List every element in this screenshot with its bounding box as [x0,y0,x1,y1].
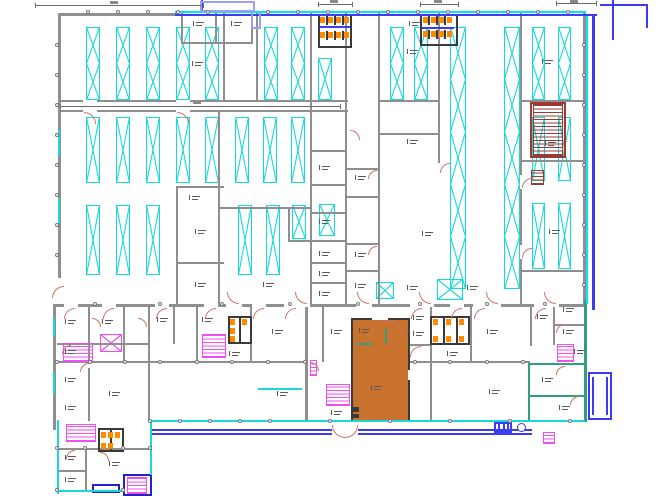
wall-segment [600,4,648,6]
wall-segment [123,474,125,496]
staircase [543,432,555,444]
room-label [562,406,570,411]
wall-segment [239,318,241,342]
column-marker [582,253,586,257]
room-label [68,350,76,355]
room-label [68,378,76,383]
column-marker [508,419,512,423]
wall-segment [204,304,218,307]
column-marker [356,302,360,306]
wall-segment [408,370,410,380]
storage-rack [146,27,160,100]
wall-segment [444,16,446,25]
door-swing [285,308,296,319]
toilet-fixture [433,319,438,325]
dock-circle-marker [517,423,526,432]
wall-segment [312,184,345,186]
wall-segment [468,316,470,345]
column-marker [356,10,360,14]
door-swing [345,425,358,438]
toilet-fixture [230,336,235,342]
dimension-line [556,3,596,4]
wall-segment [350,14,352,48]
column-marker [55,133,59,137]
wall-segment [588,372,590,420]
storage-rack [116,117,130,183]
equipment-symbol [437,279,463,300]
wall-segment [312,150,345,152]
wall-segment [428,16,430,25]
room-label [410,50,418,55]
column-marker [146,10,150,14]
wall-segment [83,100,97,102]
toilet-fixture [446,336,451,342]
toilet-fixture [108,432,113,438]
toilet-fixture [230,319,235,325]
dimension-text [434,0,442,3]
wall-segment [530,306,532,346]
column-marker [268,419,272,423]
column-marker [55,223,59,227]
wall-segment [123,474,152,476]
wall-segment [430,343,470,345]
toilet-fixture [336,32,341,38]
wall-segment [352,414,359,418]
dimension-text [193,101,201,104]
column-marker [388,419,392,423]
storage-rack [263,117,277,183]
staircase [557,344,574,362]
column-marker [568,419,572,423]
wall-segment [428,30,430,39]
door-swing [410,346,421,357]
column-marker [55,163,59,167]
column-marker [266,360,270,364]
wall-segment [380,100,438,102]
toilet-fixture [439,31,444,37]
room-label [266,283,274,288]
column-marker [55,253,59,257]
room-label [545,60,553,65]
toilet-fixture [447,17,452,23]
wall-segment [148,306,150,363]
column-marker [328,419,332,423]
wall-segment [378,13,380,304]
toilet-fixture [446,319,451,325]
wall-segment [58,198,60,224]
door-swing [474,308,485,319]
door-swing [368,246,377,255]
column-marker [413,360,417,364]
room-label [410,286,418,291]
wall-segment [436,30,438,39]
wall-segment [123,494,152,496]
room-label [545,378,553,383]
door-swing [350,130,360,140]
room-label [232,352,240,357]
room-label [68,320,76,325]
wall-segment [586,16,588,304]
column-marker [582,73,586,77]
toilet-fixture [459,319,464,325]
room-label [234,22,242,27]
storage-rack [146,205,160,275]
wall-segment [85,448,87,490]
room-label [492,390,500,395]
wall-segment [310,13,312,304]
wall-segment [494,422,496,432]
wall-segment [507,424,509,431]
dimension-line [318,4,352,5]
storage-rack [504,27,520,289]
storage-rack [176,117,190,183]
door-swing [52,286,64,298]
room-label [362,329,370,334]
door-swing [332,425,345,438]
column-marker [418,302,422,306]
room-label [205,318,213,323]
wall-segment [352,407,359,412]
wall-segment [420,14,422,46]
wall-segment [305,306,308,422]
wall-segment [102,304,116,307]
column-marker [582,43,586,47]
column-marker [176,10,180,14]
wall-segment [226,304,242,307]
wall-segment [148,363,150,421]
room-label [112,392,120,397]
staircase [202,334,226,358]
column-marker [83,446,87,450]
dimension-tick [203,3,204,8]
toilet-fixture [423,17,428,23]
column-marker [206,10,210,14]
room-label [68,478,76,483]
wall-segment [57,470,85,472]
column-marker [303,360,307,364]
wall-segment [181,13,183,42]
wall-segment [253,1,255,12]
column-marker [582,193,586,197]
column-marker [288,302,292,306]
wall-segment [456,14,458,46]
wall-segment [444,30,446,39]
wall-segment [320,26,350,28]
room-label [548,142,556,147]
door-swing [522,178,532,188]
wall-segment [520,160,583,162]
storage-rack [235,117,249,183]
storage-rack [264,27,278,100]
room-label [374,386,382,391]
column-marker [296,10,300,14]
wall-segment [408,361,530,363]
toilet-fixture [230,328,235,334]
room-label [358,176,366,181]
column-marker [55,193,59,197]
room-label [322,252,330,257]
dimension-line [420,4,458,5]
wall-segment [57,420,59,494]
wall-segment [606,377,608,415]
column-marker [485,360,489,364]
room-label [358,284,366,289]
dimension-tick [352,2,353,7]
door-swing [522,248,532,258]
column-marker [536,10,540,14]
column-marker [158,360,162,364]
storage-rack [532,27,545,100]
toilet-fixture [108,443,113,449]
storage-rack [146,117,160,183]
storage-rack [558,203,571,269]
column-marker [521,360,525,364]
column-marker [121,446,125,450]
door-swing [556,366,565,375]
door-swing [84,112,96,124]
wall-segment [528,363,587,365]
wall-segment [430,316,432,345]
wall-segment [218,207,312,209]
storage-rack [390,27,404,100]
storage-rack [86,27,100,100]
wall-segment [592,14,595,310]
wall-segment [92,484,120,486]
wall-segment [345,243,378,245]
dimension-tick [458,2,459,7]
wall-segment [176,100,190,102]
dimension-text [330,0,338,3]
room-label [198,230,206,235]
wall-segment [251,27,261,29]
room-label [275,330,283,335]
staircase [531,170,544,185]
room-label [358,253,366,258]
wall-segment [88,368,90,421]
staircase [533,104,563,156]
toilet-fixture [431,17,436,23]
room-label [198,283,206,288]
door-swing [368,170,377,179]
wall-segment [228,342,252,344]
storage-rack [238,205,252,275]
storage-rack [558,27,571,100]
wall-segment [58,110,348,112]
wall-segment [470,306,472,362]
door-swing [80,363,89,372]
wall-segment [53,318,55,336]
wall-segment [422,27,454,29]
storage-rack [291,27,305,100]
storage-rack [116,27,130,100]
wall-segment [420,44,458,46]
wall-segment [312,282,345,284]
wall-segment [258,388,302,390]
toilet-fixture [423,31,428,37]
door-swing [64,308,75,319]
room-label [425,232,433,237]
wall-segment [223,13,225,102]
wall-segment [58,100,348,102]
dimension-line [35,5,203,6]
wall-segment [564,102,566,158]
wall-segment [175,14,597,16]
door-swing [253,308,264,319]
column-marker [582,163,586,167]
door-swing [92,318,101,327]
room-label [470,286,478,291]
door-swing [570,396,579,405]
wall-segment [592,377,594,415]
column-marker [86,10,90,14]
wall-segment [53,372,55,394]
column-marker [93,302,97,306]
room-label [416,332,424,337]
column-marker [582,223,586,227]
column-marker [543,302,547,306]
wall-segment [181,42,253,44]
room-label [68,456,76,461]
dimension-tick [60,104,61,109]
column-marker [178,419,182,423]
room-label [410,140,418,145]
wall-segment [173,306,175,344]
wall-segment [646,4,648,28]
room-label [566,308,574,313]
wall-segment [312,262,345,264]
column-marker [123,360,127,364]
wall-segment [380,133,438,135]
storage-rack [205,117,219,183]
wall-segment [288,240,312,242]
wall-segment [610,372,612,420]
toilet-fixture [328,17,333,23]
wall-segment [123,306,125,363]
toilet-fixture [320,32,325,38]
wall-segment [148,420,585,422]
column-marker [220,302,224,306]
column-marker [158,302,162,306]
dimension-line [60,106,340,107]
dimension-tick [318,2,319,7]
wall-segment [176,186,178,304]
column-marker [448,360,452,364]
wall-segment [215,13,217,42]
storage-rack [450,27,466,289]
dimension-text [570,0,578,3]
column-marker [121,488,125,492]
room-label [566,330,574,335]
room-label [68,406,76,411]
room-label [552,230,560,235]
room-label [334,411,342,416]
door-swing [295,292,307,304]
staircase [66,424,96,442]
wall-segment [53,304,587,307]
wall-segment [443,318,445,343]
door-swing [227,292,239,304]
dimension-tick [420,2,421,7]
wall-segment [288,207,290,242]
wall-segment [252,304,266,307]
door-swing [451,308,462,319]
room-label [192,196,200,201]
wall-segment [312,212,345,214]
door-swing [310,362,319,371]
column-marker [476,10,480,14]
toilet-fixture [242,319,247,325]
dimension-tick [340,104,341,109]
room-label [322,166,330,171]
wall-segment [430,316,470,318]
room-label [195,62,203,67]
wall-segment [312,240,345,242]
toilet-fixture [447,31,452,37]
toilet-fixture [336,17,341,23]
toilet-fixture [328,32,333,38]
toilet-fixture [433,336,438,342]
staircase [326,384,350,406]
room-label [334,330,342,335]
wall-segment [322,306,324,362]
column-marker [446,10,450,14]
floor-plan-canvas[interactable] [0,0,660,500]
column-marker [55,446,59,450]
wall-segment [176,186,224,188]
room-label [490,330,498,335]
wall-segment [150,474,152,496]
toilet-fixture [320,17,325,23]
toilet-fixture [459,336,464,342]
storage-rack [266,205,280,275]
wall-segment [345,196,378,198]
wall-segment [498,424,500,431]
column-marker [485,302,489,306]
column-marker [88,360,92,364]
column-marker [506,10,510,14]
wall-segment [64,304,78,307]
room-label [322,272,330,277]
room-label [280,392,288,397]
column-marker [230,360,234,364]
door-swing [103,308,114,319]
wall-segment [345,13,347,304]
toilet-fixture [101,432,106,438]
room-label [160,318,168,323]
dimension-text [110,1,118,4]
column-marker [326,10,330,14]
column-marker [448,419,452,423]
wall-segment [196,306,198,363]
toilet-fixture [431,31,436,37]
column-marker [582,103,586,107]
column-marker [116,10,120,14]
toilet-fixture [344,17,349,23]
toilet-fixture [115,432,120,438]
wall-segment [520,13,522,304]
column-marker [266,10,270,14]
storage-rack [176,27,190,100]
column-marker [55,360,59,364]
room-label [112,462,120,467]
wall-segment [456,318,458,343]
storage-rack [116,205,130,275]
staircase [127,477,147,494]
wall-segment [588,418,612,420]
wall-segment [612,0,614,40]
room-label [540,315,548,320]
room-label [416,316,424,321]
